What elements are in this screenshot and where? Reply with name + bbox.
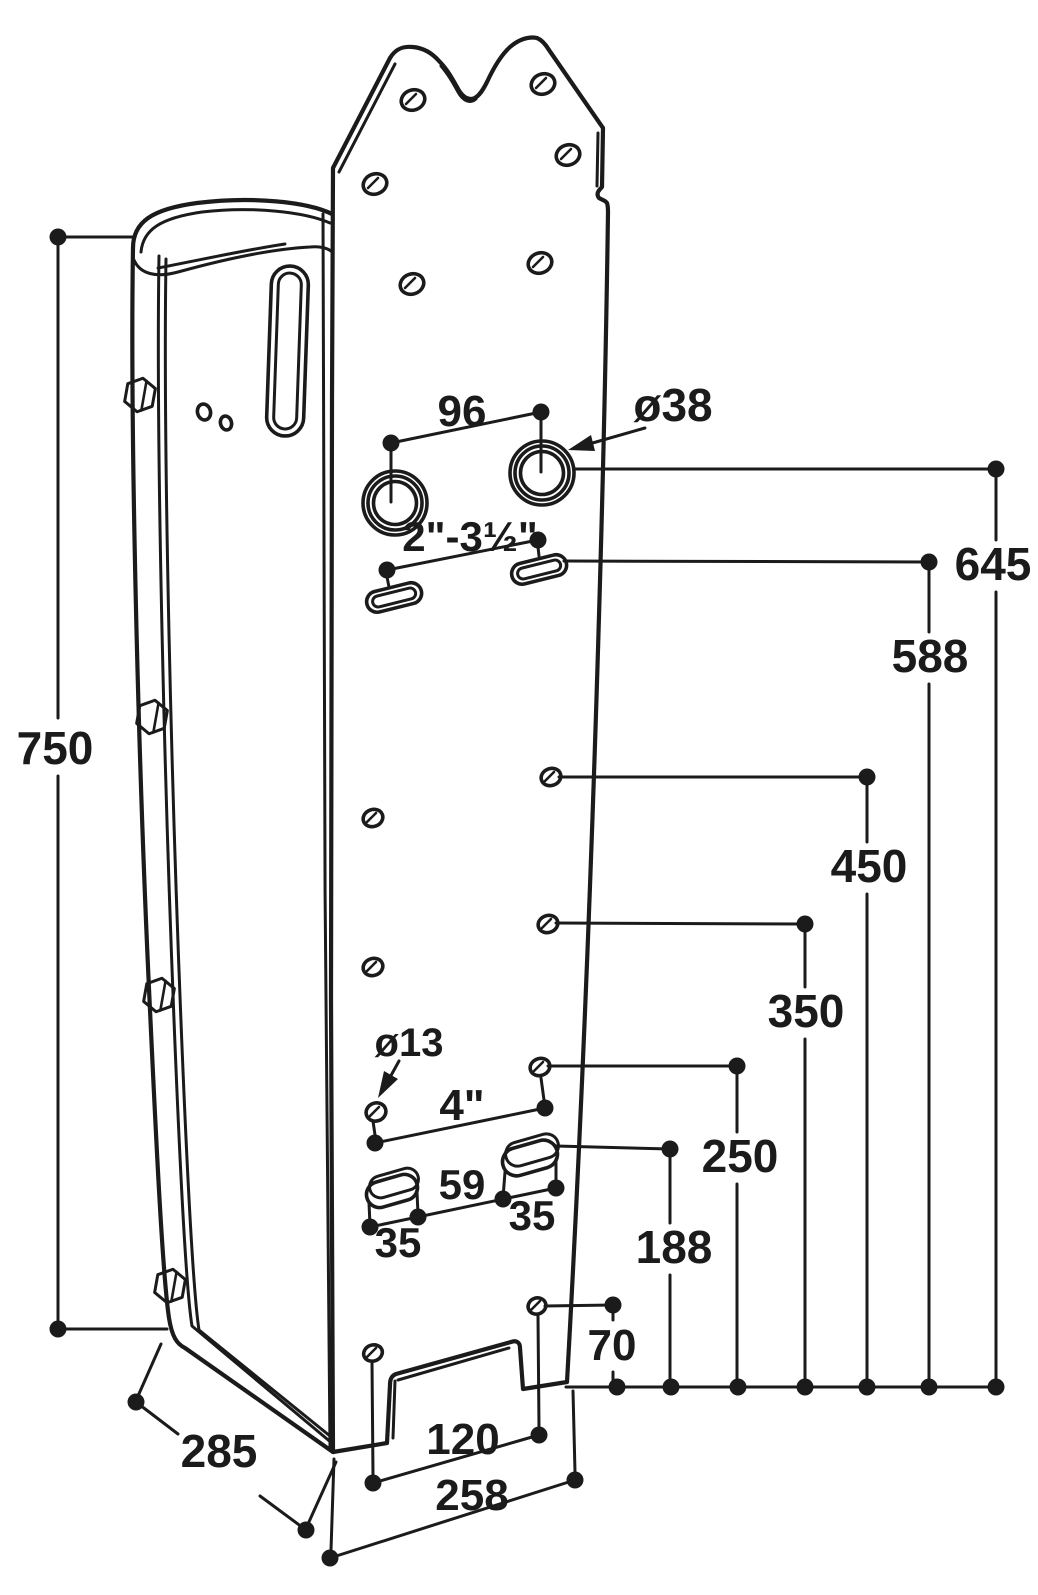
side-panel xyxy=(123,200,333,1452)
front-plate-fold-line xyxy=(323,214,330,1448)
small-hole xyxy=(361,1342,384,1364)
small-hole xyxy=(361,956,386,979)
dim-450: 450 xyxy=(559,769,907,1388)
dim-120-label: 120 xyxy=(426,1415,499,1464)
dim-70: 70 xyxy=(545,1297,636,1388)
bracket-dimension-drawing: 750 285 96 ø38 xyxy=(0,0,1038,1595)
mid-holes xyxy=(361,766,564,1124)
front-plate xyxy=(323,37,608,1452)
dim-645-label: 645 xyxy=(955,538,1032,590)
dim-258-label: 258 xyxy=(435,1471,508,1520)
dim-188-label: 188 xyxy=(636,1221,713,1273)
mount-hole xyxy=(525,249,554,276)
dim-588: 588 xyxy=(564,554,968,1388)
plate-thickness-top-left xyxy=(339,64,395,172)
hole-13 xyxy=(364,1100,389,1124)
mount-hole xyxy=(397,270,426,297)
plate-thickness-valley xyxy=(441,66,476,101)
dim-450-label: 450 xyxy=(831,840,908,892)
dia38-label: ø38 xyxy=(633,379,712,431)
top-mounting-holes xyxy=(360,70,582,297)
small-hole xyxy=(196,403,213,422)
dim-750-label: 750 xyxy=(17,722,94,774)
pipe-range-label: 2"-3½" xyxy=(402,513,538,560)
drawing-canvas: 750 285 96 ø38 xyxy=(0,0,1038,1595)
hex-bolt xyxy=(123,376,156,414)
top-curl-tongue xyxy=(158,244,285,268)
mount-hole xyxy=(398,86,427,113)
dim-4in-label: 4" xyxy=(439,1081,484,1130)
dim-285: 285 xyxy=(128,1344,337,1539)
dim-285-label: 285 xyxy=(181,1425,258,1477)
side-panel-outer-edge xyxy=(132,248,333,1452)
dim-pipe-range: 2"-3½" xyxy=(379,513,547,587)
dim-35-left-label: 35 xyxy=(375,1219,422,1266)
dim-250-label: 250 xyxy=(702,1130,779,1182)
callout-dia13: ø13 xyxy=(375,1021,444,1098)
dim-96-label: 96 xyxy=(438,387,487,436)
plate-thickness-top-right xyxy=(597,133,598,186)
pipe-slot-left xyxy=(364,581,423,615)
dia13-label: ø13 xyxy=(375,1021,444,1065)
side-panel-fold-line-2 xyxy=(165,259,330,1436)
small-hole xyxy=(361,807,386,830)
small-hole xyxy=(219,415,233,431)
dim-350-label: 350 xyxy=(768,985,845,1037)
bottom-tab-inner-side xyxy=(393,1381,395,1438)
dim-baseline xyxy=(566,1379,1005,1396)
dim-70-label: 70 xyxy=(588,1321,637,1370)
side-panel-fold-line-1 xyxy=(158,256,333,1444)
dim-588-label: 588 xyxy=(892,630,969,682)
hex-bolt xyxy=(153,1267,186,1305)
bottom-tab-inner xyxy=(398,1348,509,1380)
mount-hole xyxy=(360,170,389,197)
mount-hole xyxy=(528,70,557,97)
callout-dia38: ø38 xyxy=(568,379,713,451)
dim-350: 350 xyxy=(556,916,844,1388)
mount-hole xyxy=(553,141,582,168)
top-curl-inner xyxy=(141,210,330,252)
dim-35-right-label: 35 xyxy=(509,1192,556,1239)
side-slot-inner xyxy=(273,273,301,430)
front-plate-outline xyxy=(331,37,608,1452)
dim-59-label: 59 xyxy=(439,1161,486,1208)
